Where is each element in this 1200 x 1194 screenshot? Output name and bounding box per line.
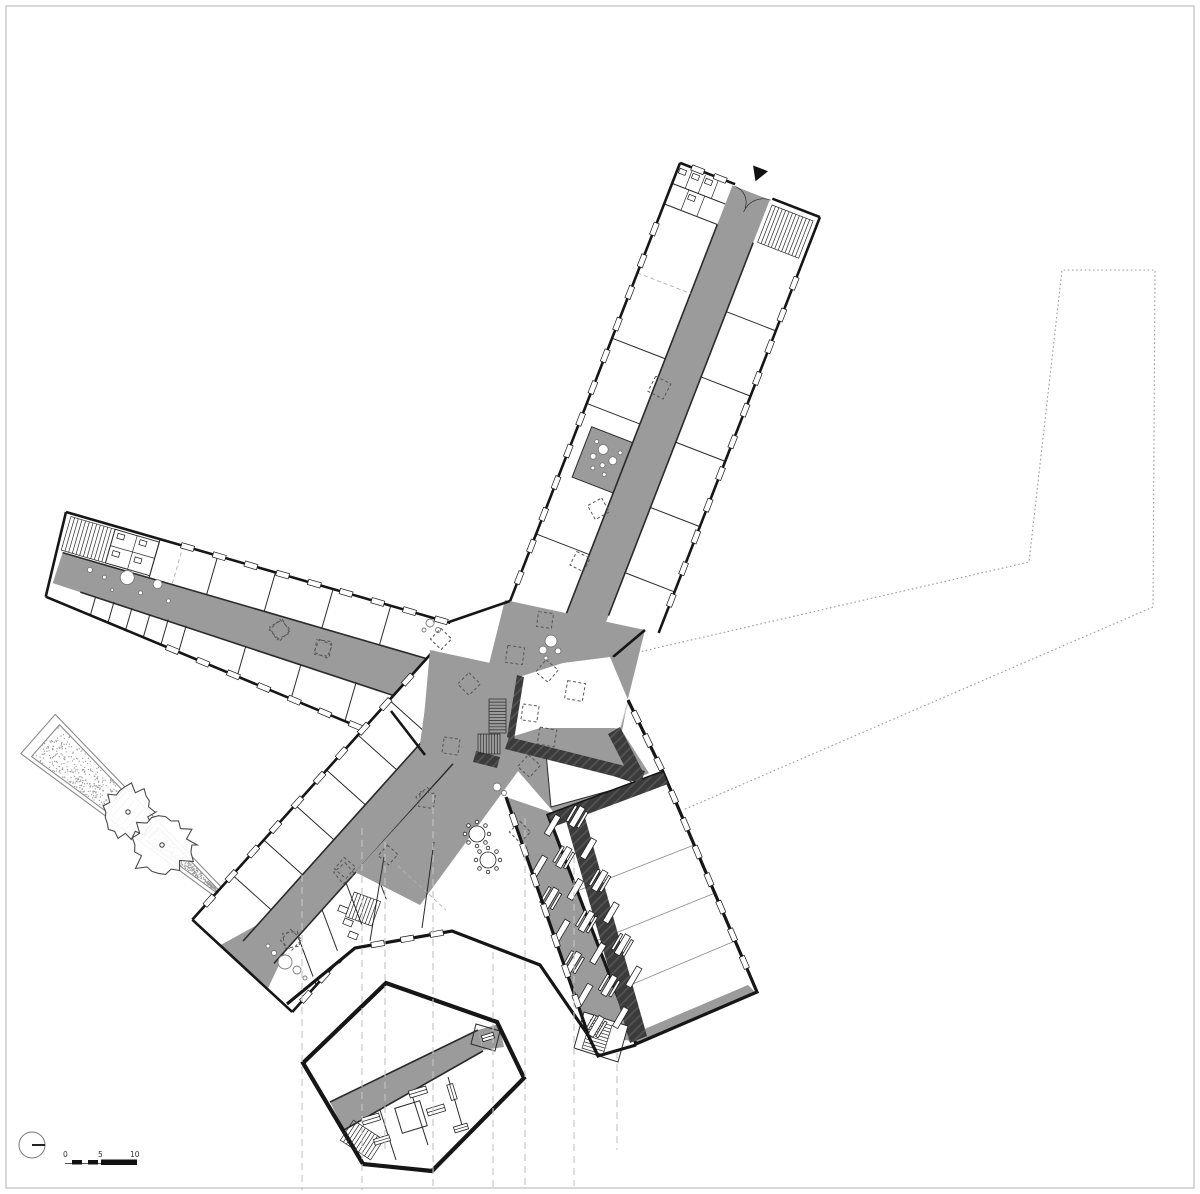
stipple-dot [39, 746, 40, 747]
round-table [469, 826, 485, 842]
stipple-dot [65, 772, 66, 773]
stipple-dot [62, 746, 63, 747]
window-tick [654, 757, 665, 771]
stipple-dot [195, 875, 196, 876]
stipple-dot [64, 756, 65, 757]
stipple-dot [76, 749, 77, 750]
planter [493, 783, 501, 791]
stipple-dot [214, 888, 215, 889]
stipple-dot [204, 879, 205, 880]
chair [486, 870, 490, 874]
stipple-dot [180, 864, 181, 865]
stipple-dot [88, 769, 89, 770]
stipple-dot [182, 864, 183, 865]
floor-plan-drawing: 0 5 10 [0, 0, 1200, 1194]
stipple-dot [54, 771, 55, 772]
stipple-dot [85, 773, 86, 774]
stipple-dot [82, 782, 83, 783]
stipple-dot [46, 747, 47, 748]
stipple-dot [104, 803, 105, 804]
planter [545, 635, 557, 647]
stipple-dot [74, 764, 75, 765]
stipple-dot [110, 780, 111, 781]
stipple-dot [80, 751, 81, 752]
stipple-dot [196, 870, 197, 871]
stipple-dot [102, 777, 103, 778]
chair [487, 832, 491, 836]
stipple-dot [89, 790, 90, 791]
stipple-dot [115, 785, 116, 786]
stipple-dot [90, 785, 91, 786]
stipple-dot [90, 770, 91, 771]
stipple-dot [93, 792, 94, 793]
stipple-dot [77, 769, 78, 770]
chair [467, 824, 471, 828]
stipple-dot [52, 748, 53, 749]
stipple-dot [42, 754, 43, 755]
stipple-dot [71, 756, 72, 757]
chair [463, 832, 467, 836]
stipple-dot [76, 787, 77, 788]
stipple-dot [65, 751, 66, 752]
stipple-dot [59, 771, 60, 772]
stipple-dot [89, 783, 90, 784]
stipple-dot [84, 767, 85, 768]
stipple-dot [69, 743, 70, 744]
stipple-dot [209, 884, 210, 885]
chair [484, 824, 488, 828]
stipple-dot [84, 772, 85, 773]
stipple-dot [103, 801, 104, 802]
stipple-dot [102, 781, 103, 782]
stipple-dot [73, 772, 74, 773]
stipple-dot [83, 761, 84, 762]
stipple-dot [54, 742, 55, 743]
stipple-dot [42, 744, 43, 745]
stipple-dot [95, 797, 96, 798]
stipple-dot [52, 770, 53, 771]
stipple-dot [105, 780, 106, 781]
wing-northeast [504, 140, 831, 666]
stipple-dot [204, 882, 205, 883]
stipple-dot [67, 769, 68, 770]
stipple-dot [203, 879, 204, 880]
stipple-dot [67, 741, 68, 742]
stipple-dot [64, 777, 65, 778]
stipple-dot [78, 760, 79, 761]
stipple-dot [44, 751, 45, 752]
stipple-dot [87, 763, 88, 764]
stipple-dot [60, 735, 61, 736]
stipple-dot [50, 742, 51, 743]
stipple-dot [95, 795, 96, 796]
window-tick [642, 733, 653, 747]
stipple-dot [96, 768, 97, 769]
stipple-dot [61, 763, 62, 764]
stipple-dot [75, 782, 76, 783]
stipple-dot [49, 755, 50, 756]
stipple-dot [39, 757, 40, 758]
stipple-dot [186, 865, 187, 866]
stipple-dot [43, 754, 44, 755]
stipple-dot [62, 754, 63, 755]
stipple-dot [101, 802, 102, 803]
stipple-dot [52, 757, 53, 758]
planter [539, 646, 547, 654]
stipple-dot [66, 744, 67, 745]
stipple-dot [203, 877, 204, 878]
stipple-dot [75, 769, 76, 770]
stipple-dot [57, 737, 58, 738]
stipple-dot [187, 863, 188, 864]
stipple-dot [94, 776, 95, 777]
stipple-dot [61, 742, 62, 743]
stipple-dot [208, 881, 209, 882]
stipple-dot [110, 782, 111, 783]
stipple-dot [211, 887, 212, 888]
stipple-dot [59, 756, 60, 757]
stipple-dot [56, 768, 57, 769]
stipple-dot [100, 770, 101, 771]
stipple-dot [60, 753, 61, 754]
stipple-dot [92, 786, 93, 787]
stipple-dot [194, 869, 195, 870]
stipple-dot [181, 861, 182, 862]
stipple-dot [193, 868, 194, 869]
stipple-dot [188, 870, 189, 871]
stipple-dot [92, 771, 93, 772]
stipple-dot [106, 800, 107, 801]
chair [474, 858, 478, 862]
stipple-dot [53, 746, 54, 747]
stipple-dot [211, 885, 212, 886]
stipple-dot [55, 740, 56, 741]
stipple-dot [56, 748, 57, 749]
stipple-dot [76, 778, 77, 779]
stipple-dot [44, 743, 45, 744]
stipple-dot [93, 795, 94, 796]
planter [422, 628, 426, 632]
stipple-dot [95, 791, 96, 792]
planter [266, 944, 270, 948]
stipple-dot [33, 755, 34, 756]
stipple-dot [46, 751, 47, 752]
stipple-dot [197, 876, 198, 877]
stipple-dot [80, 764, 81, 765]
stipple-dot [82, 758, 83, 759]
stipple-dot [197, 871, 198, 872]
stipple-dot [50, 758, 51, 759]
stipple-dot [92, 791, 93, 792]
stipple-dot [193, 866, 194, 867]
stipple-dot [79, 776, 80, 777]
stipple-dot [79, 748, 80, 749]
stipple-dot [190, 864, 191, 865]
scale-label-10: 10 [130, 1150, 140, 1159]
stipple-dot [40, 760, 41, 761]
stipple-dot [57, 727, 58, 728]
stipple-dot [99, 785, 100, 786]
stipple-dot [215, 889, 216, 890]
stipple-dot [100, 793, 101, 794]
stipple-dot [52, 761, 53, 762]
stipple-dot [63, 763, 64, 764]
stipple-dot [97, 787, 98, 788]
stipple-dot [83, 786, 84, 787]
planter [426, 619, 434, 627]
stipple-dot [102, 780, 103, 781]
chair [475, 820, 479, 824]
planter [502, 791, 507, 796]
chair [495, 850, 499, 854]
stipple-dot [46, 740, 47, 741]
stipple-dot [181, 863, 182, 864]
scale-label-0: 0 [63, 1150, 68, 1159]
stipple-dot [73, 782, 74, 783]
stipple-dot [87, 783, 88, 784]
stipple-dot [99, 800, 100, 801]
stipple-dot [70, 777, 71, 778]
stipple-dot [190, 869, 191, 870]
planter [278, 955, 292, 969]
stipple-dot [88, 758, 89, 759]
stipple-dot [209, 882, 210, 883]
stipple-dot [93, 799, 94, 800]
stipple-dot [75, 766, 76, 767]
stipple-dot [68, 746, 69, 747]
stipple-dot [88, 791, 89, 792]
stipple-dot [66, 766, 67, 767]
entrance-arrow-icon [748, 165, 768, 184]
stipple-dot [82, 780, 83, 781]
chair [475, 844, 479, 848]
stipple-dot [101, 786, 102, 787]
stipple-dot [106, 785, 107, 786]
stipple-dot [93, 783, 94, 784]
stipple-dot [57, 762, 58, 763]
stipple-dot [200, 878, 201, 879]
stipple-dot [55, 755, 56, 756]
chair [478, 867, 482, 871]
stipple-dot [95, 773, 96, 774]
stipple-dot [84, 770, 85, 771]
stipple-dot [58, 726, 59, 727]
stipple-dot [52, 763, 53, 764]
stipple-dot [43, 749, 44, 750]
stipple-dot [110, 790, 111, 791]
stipple-dot [74, 767, 75, 768]
stipple-dot [90, 769, 91, 770]
stipple-dot [57, 740, 58, 741]
stipple-dot [72, 753, 73, 754]
stipple-dot [95, 779, 96, 780]
stipple-dot [102, 804, 103, 805]
stipple-dot [207, 884, 208, 885]
planter [110, 588, 114, 592]
stipple-dot [42, 762, 43, 763]
stipple-dot [82, 788, 83, 789]
stipple-dot [63, 744, 64, 745]
stipple-dot [99, 788, 100, 789]
stipple-dot [102, 784, 103, 785]
stipple-dot [72, 783, 73, 784]
stipple-dot [60, 746, 61, 747]
stipple-dot [58, 747, 59, 748]
stipple-dot [71, 746, 72, 747]
stipple-dot [74, 786, 75, 787]
stipple-dot [49, 767, 50, 768]
scale-bar: 0 5 10 [63, 1150, 140, 1165]
stipple-dot [80, 776, 81, 777]
planter [303, 976, 307, 980]
stipple-dot [69, 781, 70, 782]
stipple-dot [200, 876, 201, 877]
stipple-dot [192, 873, 193, 874]
stipple-dot [98, 767, 99, 768]
stipple-dot [113, 782, 114, 783]
stipple-dot [97, 794, 98, 795]
stipple-dot [53, 756, 54, 757]
stipple-dot [49, 762, 50, 763]
stipple-dot [185, 862, 186, 863]
stipple-dot [98, 785, 99, 786]
stipple-dot [73, 758, 74, 759]
pentagon-outbuilding [303, 983, 524, 1171]
stipple-dot [77, 758, 78, 759]
stipple-dot [99, 804, 100, 805]
stipple-dot [189, 863, 190, 864]
stipple-dot [98, 787, 99, 788]
stipple-dot [62, 748, 63, 749]
planter [555, 648, 561, 654]
stipple-dot [83, 791, 84, 792]
stipple-dot [65, 748, 66, 749]
stipple-dot [113, 783, 114, 784]
stipple-dot [188, 862, 189, 863]
stipple-dot [96, 785, 97, 786]
stipple-dot [190, 865, 191, 866]
stipple-dot [67, 779, 68, 780]
stipple-dot [92, 797, 93, 798]
stipple-dot [75, 771, 76, 772]
chair [486, 846, 490, 850]
stipple-dot [98, 781, 99, 782]
stipple-dot [206, 882, 207, 883]
chair [467, 841, 471, 845]
planter [293, 966, 301, 974]
garden-courtyard [21, 714, 244, 915]
chair [498, 858, 502, 862]
stipple-dot [61, 769, 62, 770]
chair [495, 867, 499, 871]
stipple-dot [86, 794, 87, 795]
stipple-dot [188, 867, 189, 868]
stipple-dot [112, 791, 113, 792]
stipple-dot [112, 780, 113, 781]
stipple-dot [68, 756, 69, 757]
stipple-dot [102, 790, 103, 791]
stipple-dot [59, 770, 60, 771]
stipple-dot [88, 796, 89, 797]
stipple-dot [81, 785, 82, 786]
stipple-dot [57, 753, 58, 754]
stipple-dot [60, 745, 61, 746]
stipple-dot [91, 794, 92, 795]
stipple-dot [59, 766, 60, 767]
stipple-dot [187, 866, 188, 867]
stipple-dot [59, 748, 60, 749]
stipple-dot [79, 787, 80, 788]
stipple-dot [95, 788, 96, 789]
stipple-dot [97, 778, 98, 779]
stipple-dot [49, 750, 50, 751]
stipple-dot [90, 761, 91, 762]
stipple-dot [56, 751, 57, 752]
tree-trunk [160, 843, 164, 847]
stipple-dot [55, 754, 56, 755]
stipple-dot [80, 780, 81, 781]
stipple-dot [64, 759, 65, 760]
stipple-dot [85, 761, 86, 762]
stipple-dot [94, 785, 95, 786]
stipple-dot [188, 865, 189, 866]
stipple-dot [196, 868, 197, 869]
stipple-dot [60, 772, 61, 773]
stipple-dot [78, 772, 79, 773]
stipple-dot [79, 785, 80, 786]
floor-plan-page: 0 5 10 [0, 0, 1200, 1194]
stipple-dot [71, 769, 72, 770]
stipple-dot [47, 746, 48, 747]
stipple-dot [113, 789, 114, 790]
stipple-dot [84, 794, 85, 795]
stipple-dot [84, 783, 85, 784]
stipple-dot [80, 791, 81, 792]
stipple-dot [115, 790, 116, 791]
window-tick [631, 710, 642, 724]
stipple-dot [85, 779, 86, 780]
stipple-dot [96, 777, 97, 778]
stipple-dot [81, 749, 82, 750]
planter [272, 951, 277, 956]
stipple-dot [77, 779, 78, 780]
stipple-dot [192, 867, 193, 868]
stipple-dot [200, 872, 201, 873]
scale-label-5: 5 [98, 1150, 103, 1159]
stipple-dot [62, 776, 63, 777]
stipple-dot [89, 774, 90, 775]
stipple-dot [102, 795, 103, 796]
stipple-dot [97, 772, 98, 773]
stipple-dot [67, 770, 68, 771]
planter [544, 656, 548, 660]
stipple-dot [82, 770, 83, 771]
stipple-dot [69, 771, 70, 772]
stipple-dot [76, 781, 77, 782]
stipple-dot [63, 734, 64, 735]
stipple-dot [62, 767, 63, 768]
stipple-dot [110, 779, 111, 780]
stipple-dot [95, 785, 96, 786]
chair [484, 841, 488, 845]
stipple-dot [49, 741, 50, 742]
stipple-dot [43, 757, 44, 758]
stipple-dot [83, 769, 84, 770]
stipple-dot [54, 761, 55, 762]
stipple-dot [72, 760, 73, 761]
stipple-dot [184, 863, 185, 864]
stipple-dot [64, 738, 65, 739]
